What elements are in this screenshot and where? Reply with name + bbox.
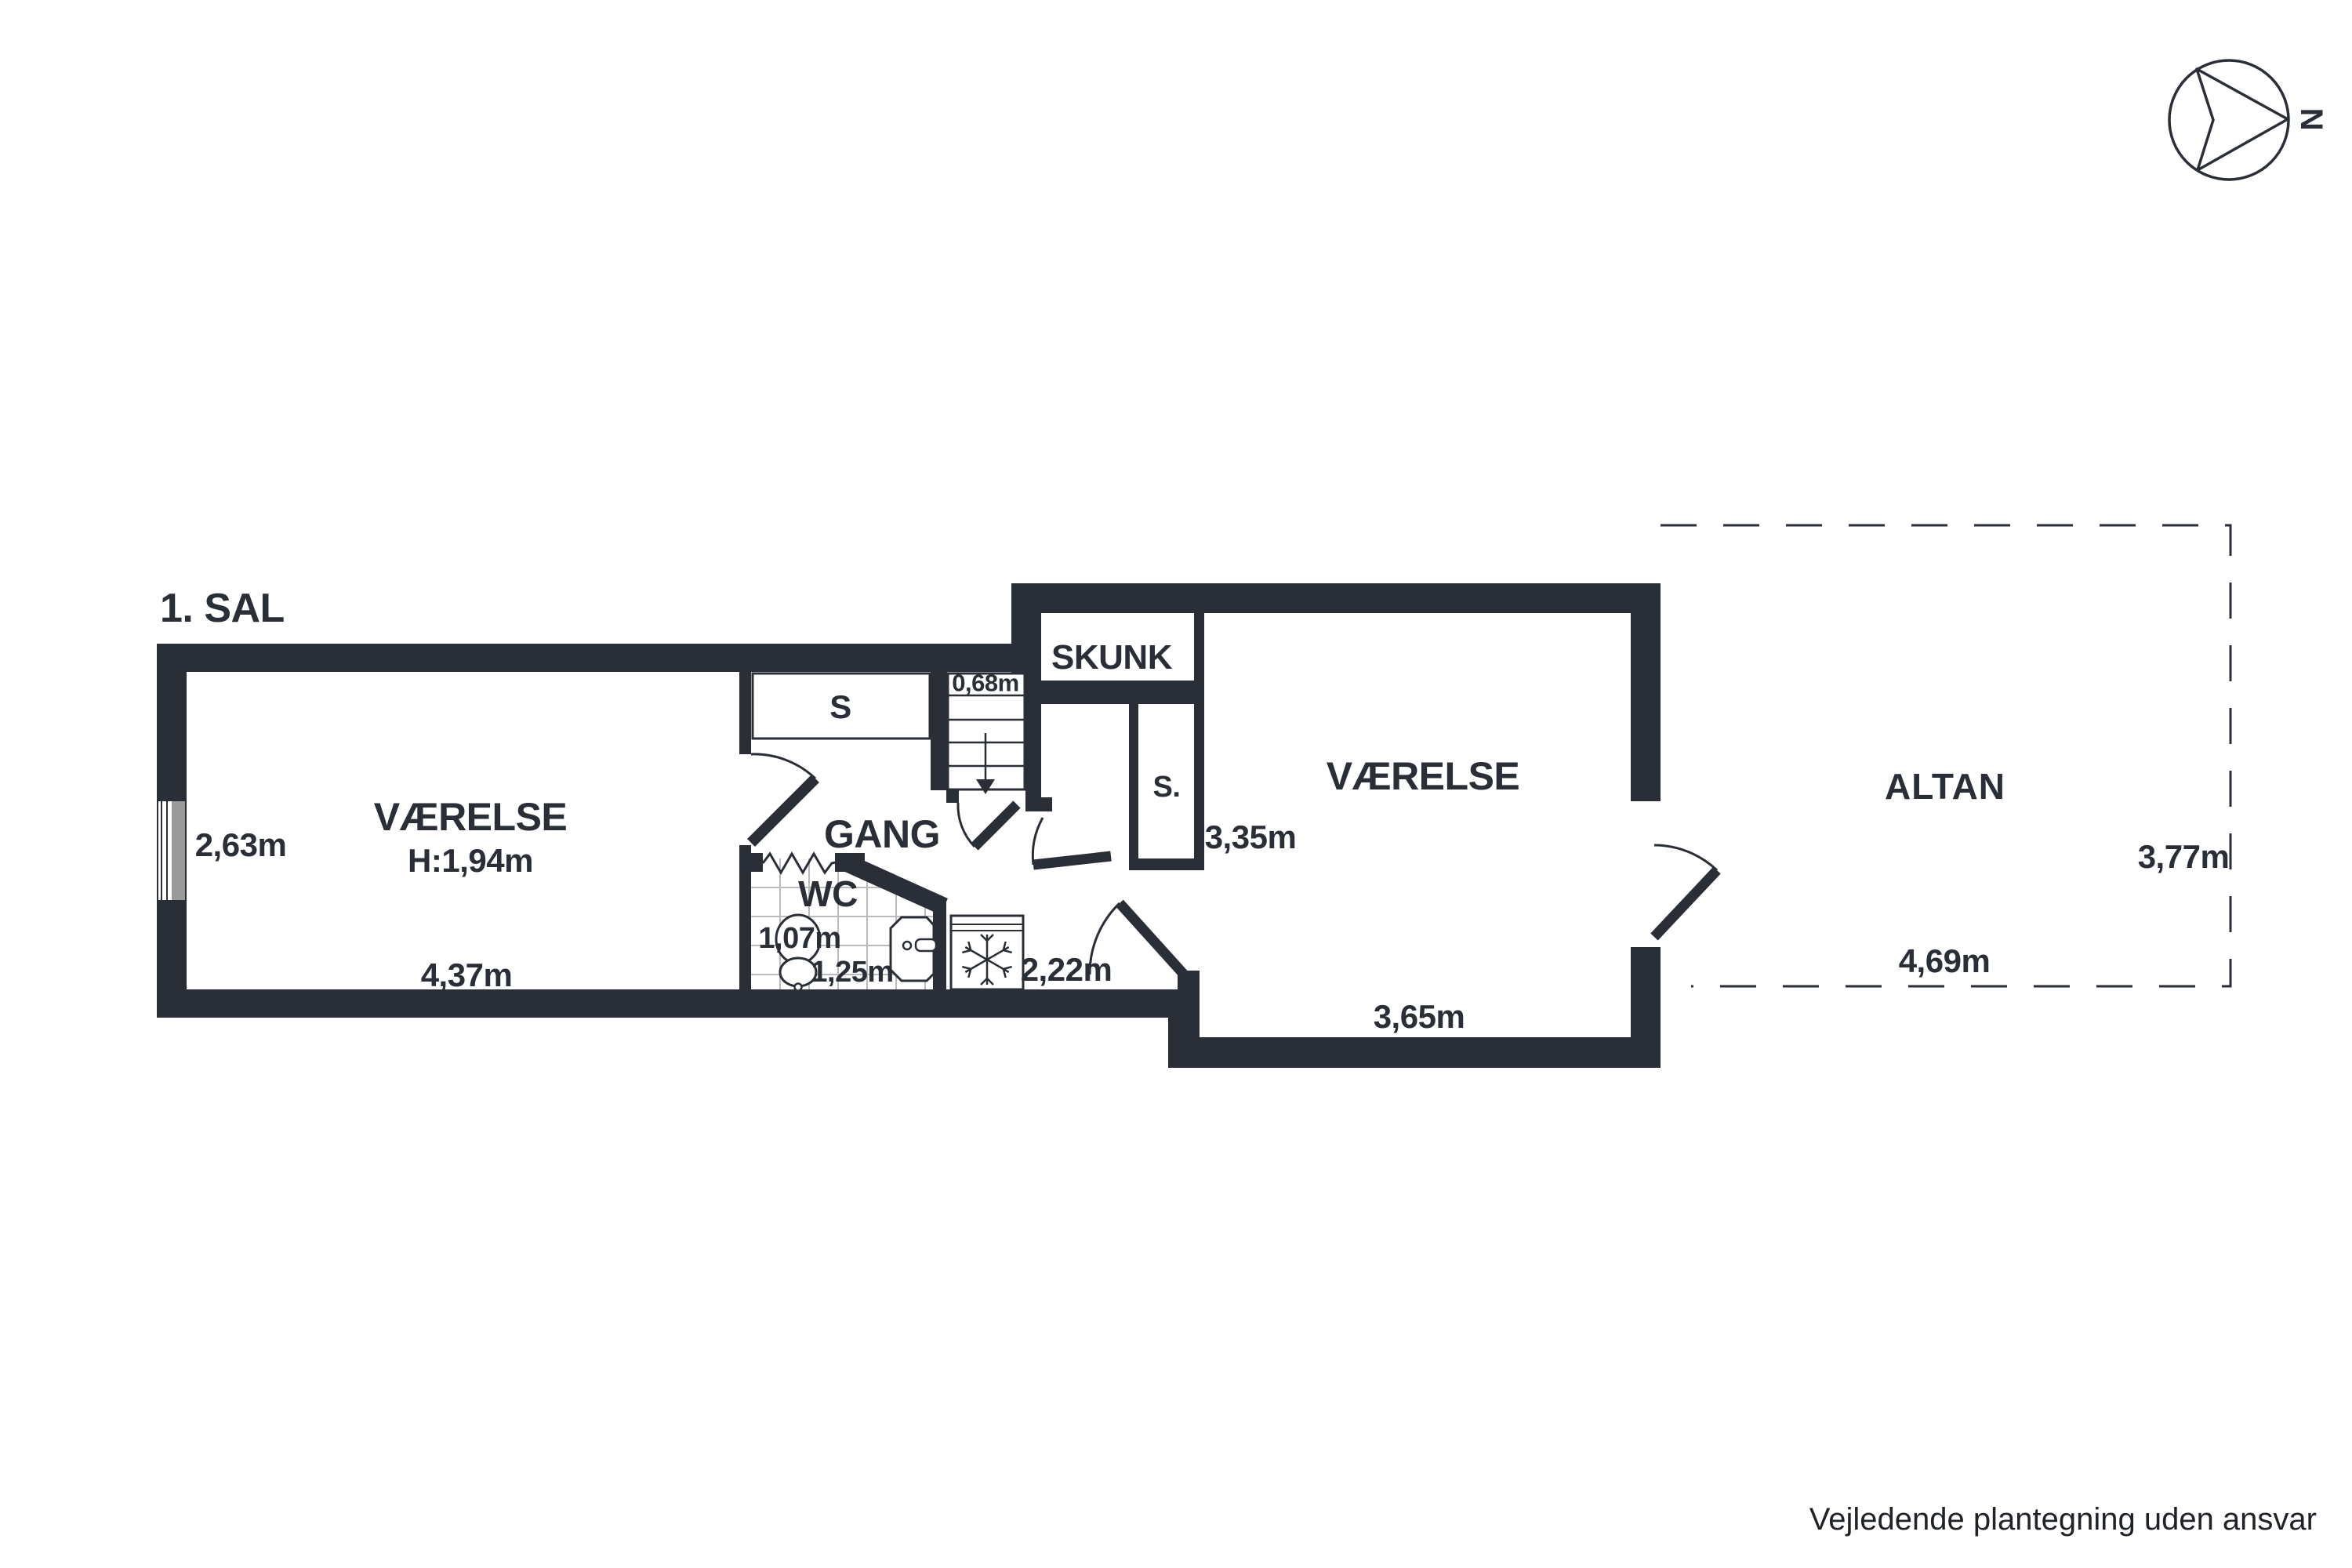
closet-right-label: S. [1153, 772, 1181, 802]
door-altan [1654, 845, 1717, 937]
wc-width-dim: 1,07m [758, 924, 840, 953]
door-room-left [751, 754, 815, 843]
window [157, 800, 187, 902]
room-right-length-dim: 3,65m [1374, 1000, 1465, 1033]
wall-stairs-left-stub [946, 790, 959, 803]
wall-skunk-bottom [1039, 681, 1204, 704]
wall-stairs-foot [1025, 797, 1052, 811]
room-left-ceiling-height: H:1,94m [408, 844, 533, 877]
wall-divider-upper [739, 672, 751, 754]
wall-right-lower [1631, 947, 1661, 1068]
floor-plan-page: 1. SAL VÆRELSE H:1,94m 2,63m 4,37m S 0,6… [0, 0, 2352, 1568]
skunk-label: SKUNK [1051, 641, 1172, 675]
room-right-width-dim: 3,35m [1205, 821, 1297, 854]
wc-curtain-zigzag [763, 854, 836, 873]
wall-top-left [157, 644, 1039, 672]
wall-closet-right [1194, 613, 1204, 870]
wc-length-dim: 1,25m [811, 957, 893, 987]
room-left-length-dim: 4,37m [421, 959, 513, 992]
wall-closet-left [1129, 704, 1138, 870]
wall-closet-bottom [1129, 858, 1204, 870]
room-left-label: VÆRELSE [374, 797, 568, 837]
stairs-width-dim: 0,68m [952, 671, 1018, 695]
wall-top-right [1011, 583, 1661, 613]
door-gang-passage [1033, 818, 1111, 865]
disclaimer-text: Vejledende plantegning uden ansvar [1809, 1504, 2317, 1535]
compass-icon [2169, 60, 2288, 180]
floor-title: 1. SAL [160, 588, 285, 629]
wall-bottom-main [157, 989, 1200, 1018]
wall-step-up-connector [1011, 583, 1041, 673]
door-stairs [958, 803, 1017, 847]
wall-left-upper [157, 644, 187, 800]
room-right-label: VÆRELSE [1327, 757, 1520, 796]
altan-depth-dim: 3,77m [2138, 840, 2230, 873]
sink-icon [891, 917, 936, 981]
gang-label: GANG [824, 815, 940, 854]
altan-label: ALTAN [1885, 768, 2005, 804]
compass-north-label: N [2296, 108, 2327, 130]
wall-right-upper [1631, 583, 1661, 801]
room-left-width-dim: 2,63m [195, 829, 287, 862]
nook-width-dim: 2,22m [1021, 953, 1112, 986]
freezer-icon [951, 916, 1023, 989]
altan-width-dim: 4,69m [1899, 945, 1991, 978]
balcony-dashed-outline [1661, 525, 2230, 986]
closet-gang-label: S [829, 691, 851, 724]
wc-label: WC [798, 876, 858, 912]
wall-closet-stairs [931, 672, 947, 790]
wall-bottom-right [1168, 1037, 1661, 1068]
wall-wc-stub [739, 853, 763, 872]
